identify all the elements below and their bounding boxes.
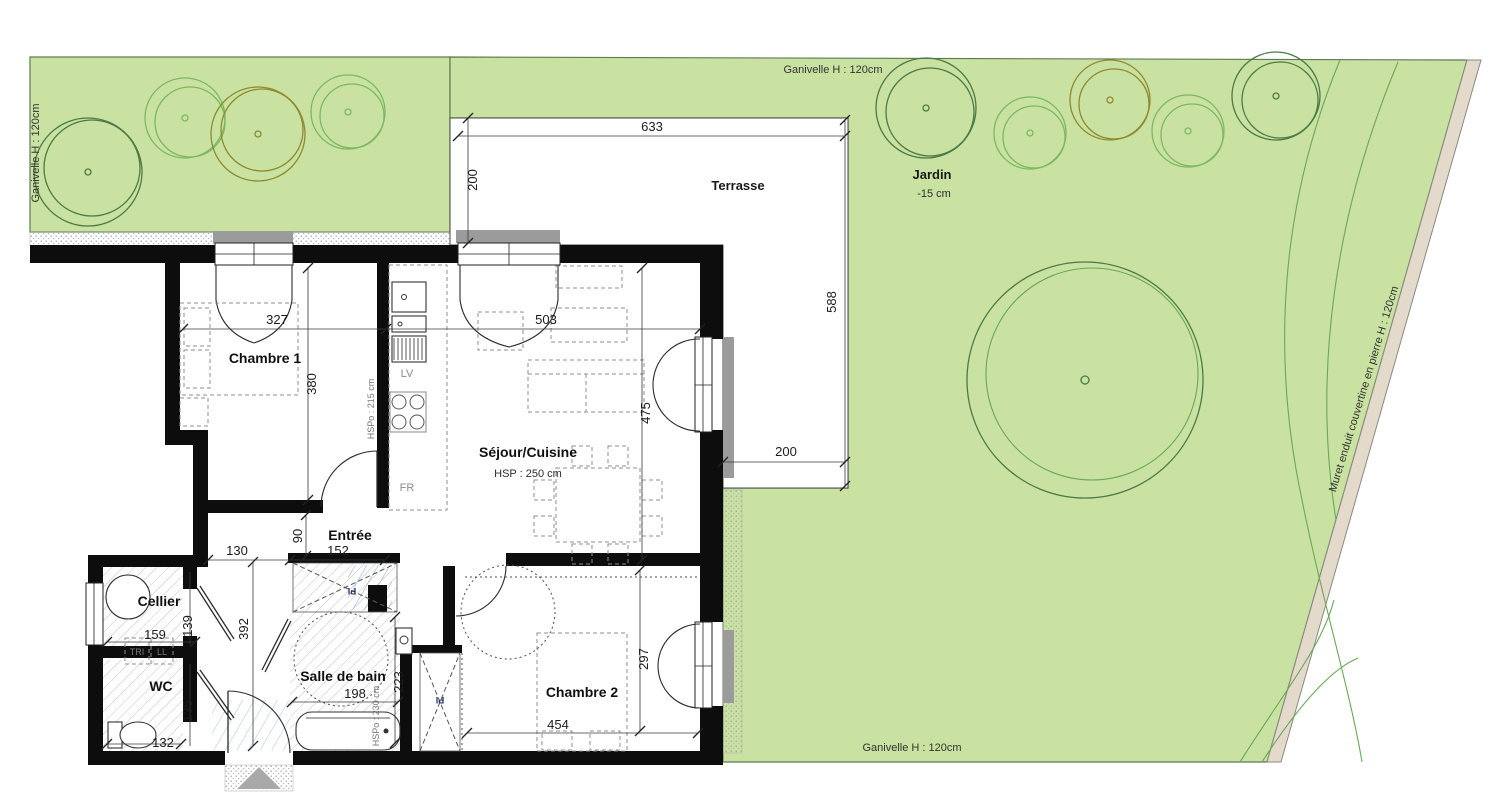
garden-label: Jardin (912, 167, 951, 182)
room-label-entree: Entrée (328, 527, 372, 543)
closet-label-2: Pl (436, 695, 445, 705)
room-ceiling-sejour: HSP : 250 cm (494, 468, 562, 480)
dim-sejour-width: 503 (535, 312, 557, 327)
tri-label: TRI (130, 647, 145, 657)
dim-wc-width: 132 (152, 735, 174, 750)
room-label-sejour: Séjour/Cuisine (479, 444, 577, 460)
dim-chambre1-width: 327 (266, 312, 288, 327)
washbasin (396, 628, 412, 654)
garden-strip-top-left (30, 57, 450, 232)
room-label-cellier: Cellier (138, 593, 181, 609)
dim-wc-height: 135 (180, 700, 195, 722)
closet-label-1: Pl (348, 586, 357, 596)
terrace (450, 118, 848, 488)
dim-terrasse-height: 588 (824, 291, 839, 313)
floor-plan-drawing: Ganivelle H : 120cm Ganivelle H : 120cm … (0, 0, 1506, 800)
fridge-label: FR (400, 482, 415, 494)
dim-chambre1-height: 380 (304, 373, 319, 395)
dim-entree-b: 152 (327, 543, 349, 558)
terrace-label: Terrasse (711, 178, 764, 193)
dim-corridor: 392 (236, 618, 251, 640)
dim-sdb-height: 223 (391, 671, 406, 693)
garden-level: -15 cm (917, 188, 951, 200)
room-label-chambre2: Chambre 2 (546, 684, 619, 700)
kitchen-ceiling-label: HSPo : 215 cm (366, 379, 376, 440)
kitchen-sink (392, 282, 426, 312)
floor-plan-page: Ganivelle H : 120cm Ganivelle H : 120cm … (0, 0, 1506, 800)
dim-sejour-height: 475 (638, 402, 653, 424)
bed-chambre2 (465, 577, 700, 751)
sejour-furniture (478, 266, 662, 564)
window-sill (213, 231, 293, 243)
room-label-sdb: Salle de bain (300, 668, 386, 684)
dim-terrasse-depth: 200 (465, 169, 480, 191)
dim-entree-c: 90 (290, 529, 305, 543)
dishwasher-label: LV (401, 368, 414, 380)
dim-chambre2-height: 297 (636, 648, 651, 670)
kitchen-burners (390, 392, 426, 432)
dim-cellier-height: 139 (180, 615, 195, 637)
window-sill (456, 230, 560, 243)
sliding-shutter (723, 337, 734, 478)
kitchen-hob (392, 336, 426, 362)
dim-sdb-width: 198 (344, 686, 366, 701)
dim-entree-a: 130 (226, 543, 248, 558)
bathtub-drain (384, 729, 389, 734)
sdb-ceiling-label: HSPo : 230 cm (371, 686, 381, 747)
kitchen-sink-2 (392, 316, 426, 332)
window-sill (723, 630, 734, 703)
room-label-wc: WC (149, 678, 172, 694)
insulation-strip-right (723, 490, 742, 753)
dim-terrasse-width: 633 (641, 119, 663, 134)
dim-chambre2-width: 454 (547, 717, 569, 732)
dim-terrasse-bottom: 200 (775, 444, 797, 459)
fence-label-bottom: Ganivelle H : 120cm (862, 742, 961, 754)
washer-label: LL (157, 647, 167, 657)
fence-label-top: Ganivelle H : 120cm (783, 64, 882, 76)
fence-label-left: Ganivelle H : 120cm (30, 103, 42, 202)
dim-cellier-width: 159 (144, 627, 166, 642)
room-label-chambre1: Chambre 1 (229, 350, 302, 366)
